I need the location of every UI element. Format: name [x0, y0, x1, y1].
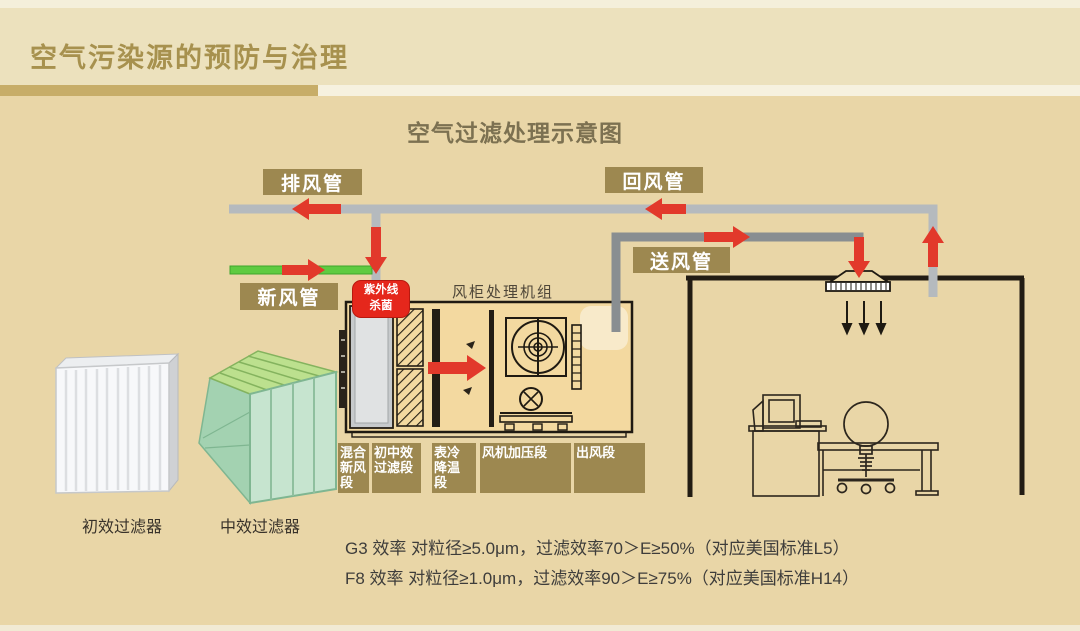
room-outline	[686, 278, 1024, 497]
ahu-section-label-filter: 初中效 过滤段	[372, 443, 421, 493]
primary-filter-image	[56, 354, 178, 493]
ahu-title: 风柜处理机组	[452, 281, 554, 302]
fresh-air-arrow	[282, 259, 325, 281]
bottom-edge-strip	[0, 625, 1080, 631]
ahu-section-label-cooling: 表冷 降温 段	[432, 443, 476, 493]
supply-duct-label: 送风管	[633, 247, 730, 273]
office-chair-drawing	[838, 402, 895, 494]
exhaust-arrow	[292, 198, 341, 220]
medium-filter-caption: 中效过滤器	[198, 513, 322, 537]
ahu-section-label-fan: 风机加压段	[480, 443, 571, 493]
note-g3: G3 效率 对粒径≥5.0μm，过滤效率70＞E≥50%（对应美国标准L5）	[345, 534, 859, 564]
slide: 空气污染源的预防与治理 空气过滤处理示意图	[0, 0, 1080, 631]
desk-computer-drawing	[749, 395, 826, 496]
side-table-drawing	[818, 443, 938, 496]
note-f8: F8 效率 对粒径≥1.0μm，过滤效率90＞E≥75%（对应美国标准H14）	[345, 564, 859, 594]
return-duct-label: 回风管	[605, 167, 703, 193]
ahu-section-label-mixing: 混合 新风 段	[338, 443, 369, 493]
uv-sterilization-badge: 紫外线 杀菌	[352, 280, 410, 318]
ahu-drawing	[339, 302, 632, 437]
exhaust-duct-label: 排风管	[263, 169, 362, 195]
fresh-duct-label: 新风管	[240, 283, 338, 310]
return-arrow	[645, 198, 686, 220]
ahu-section-label-outlet: 出风段	[574, 443, 645, 493]
airflow-down-arrows	[843, 301, 885, 333]
efficiency-notes: G3 效率 对粒径≥5.0μm，过滤效率70＞E≥50%（对应美国标准L5） F…	[345, 534, 859, 594]
medium-filter-image	[199, 351, 336, 503]
return-up-arrow	[922, 226, 944, 267]
primary-filter-caption: 初效过滤器	[60, 513, 184, 537]
supply-right-arrow	[704, 226, 750, 248]
